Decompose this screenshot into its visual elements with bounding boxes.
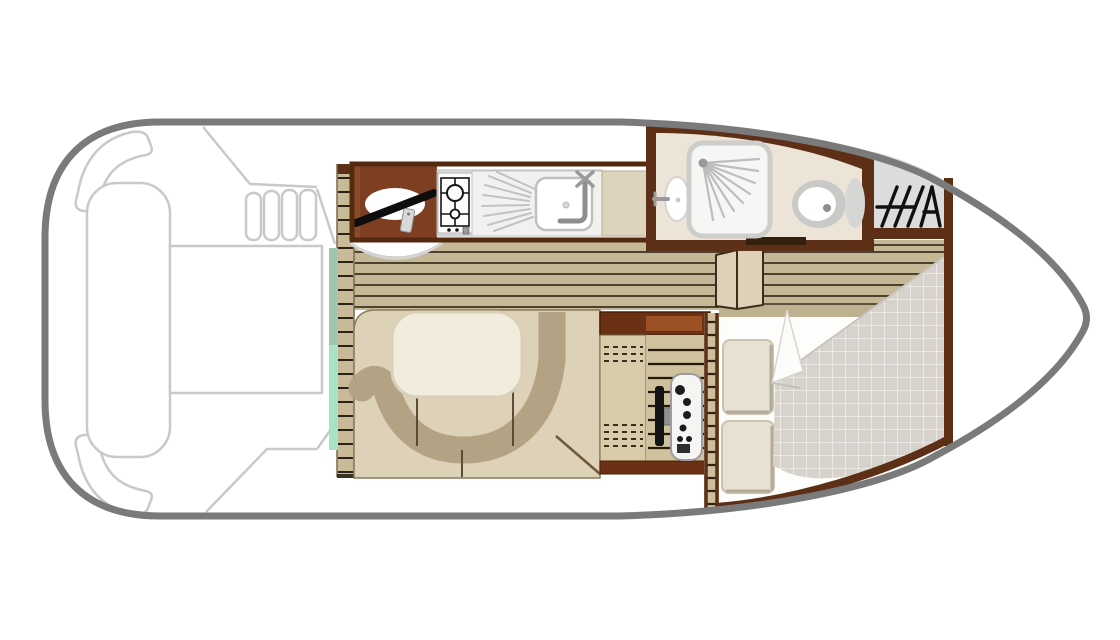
sink-icon [472, 171, 602, 236]
stove-icon [438, 173, 472, 234]
bathroom [646, 122, 874, 251]
dinette-table [392, 312, 522, 397]
bulkhead-wall [944, 178, 953, 446]
sliding-door [329, 248, 338, 450]
pillow [723, 340, 773, 414]
dinette [349, 310, 601, 478]
boat-floor-plan [0, 0, 1120, 640]
media-cabinet [600, 312, 710, 474]
cabin-door [716, 246, 763, 309]
stern-steps [246, 190, 316, 240]
stern-bench [87, 183, 170, 457]
shower-icon [689, 143, 770, 236]
floor-plan [0, 0, 1120, 640]
toilet-icon [792, 178, 865, 228]
pillow [722, 421, 774, 493]
galley-cabinet [602, 171, 648, 236]
engine-hatch [170, 246, 322, 393]
bow-ladder [704, 313, 719, 513]
